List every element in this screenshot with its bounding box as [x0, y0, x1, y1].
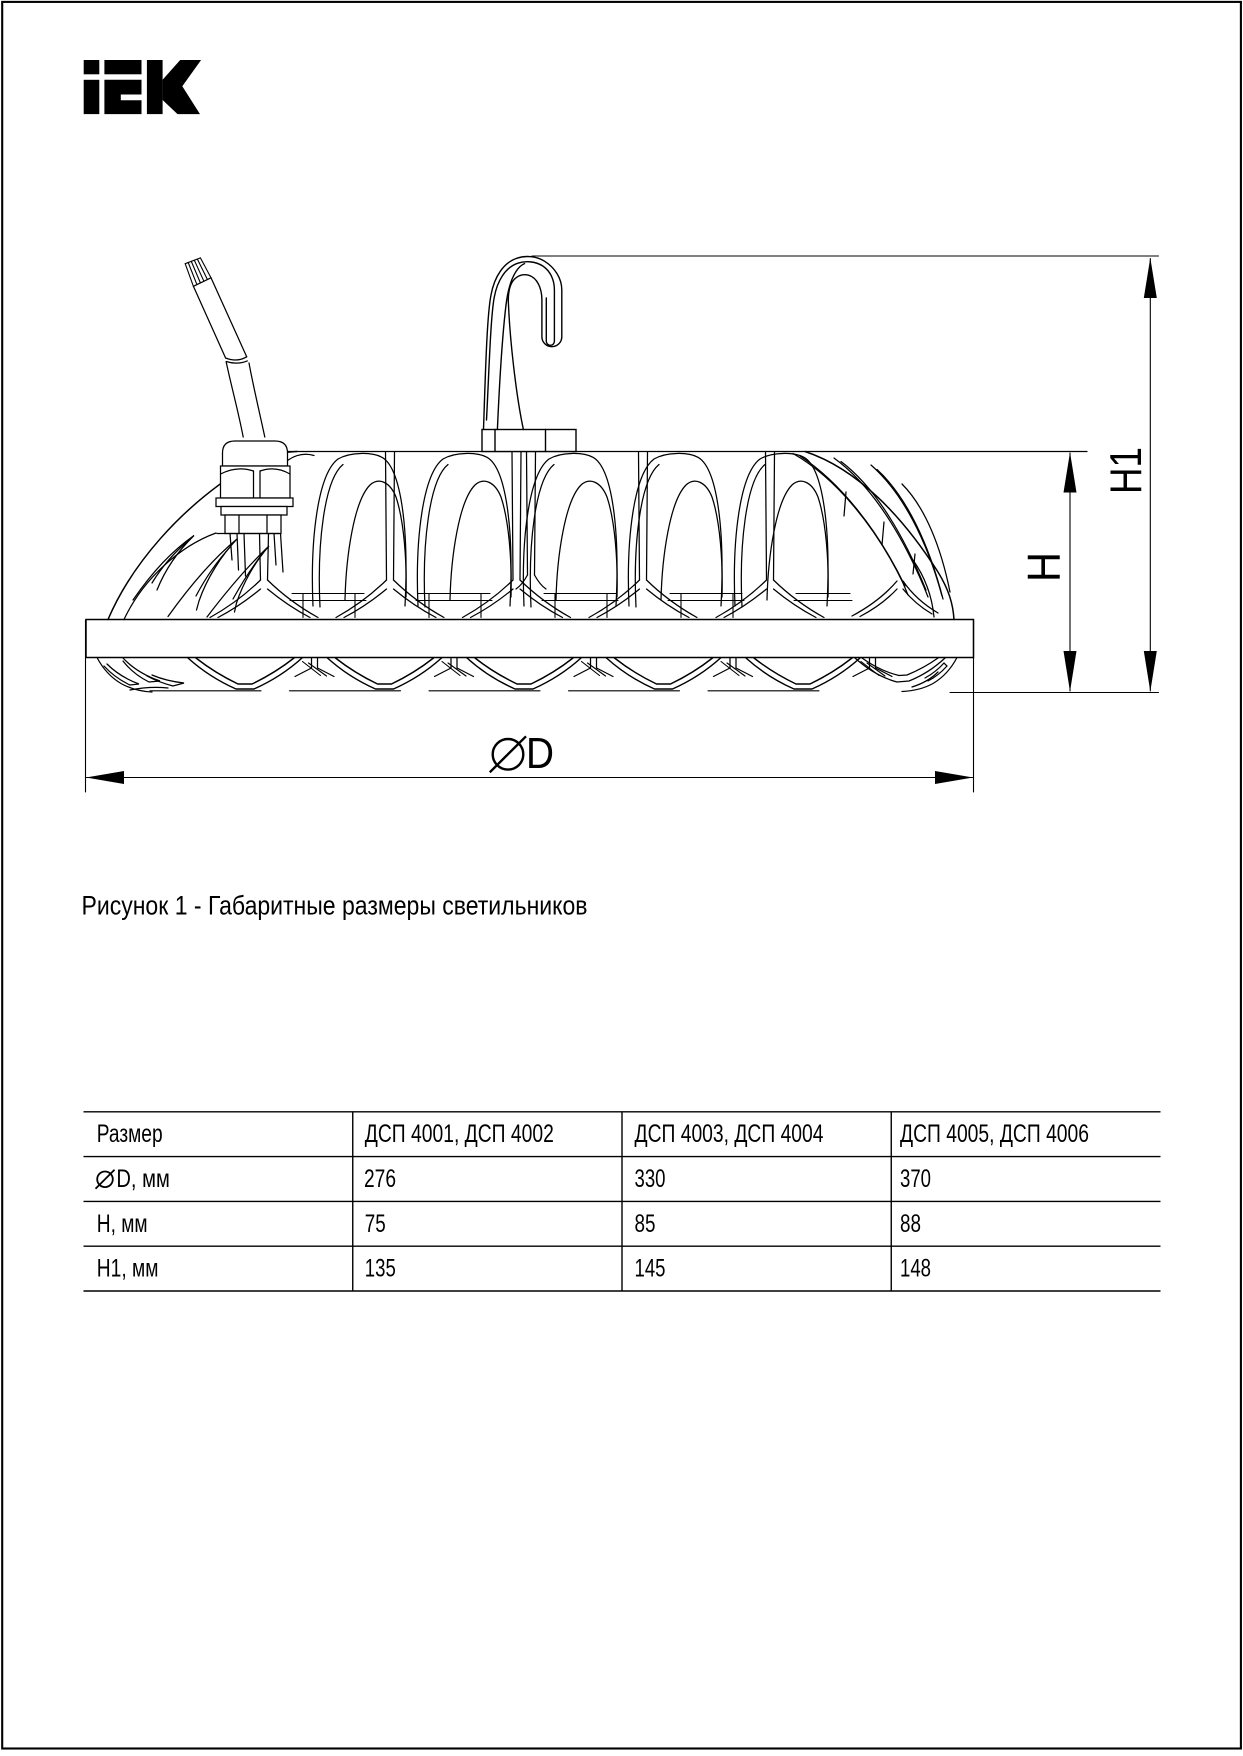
svg-text:276: 276 [364, 1165, 396, 1193]
svg-text:148: 148 [900, 1255, 931, 1283]
svg-text:Рисунок 1 - Габаритные размеры: Рисунок 1 - Габаритные размеры светильни… [82, 890, 588, 920]
svg-text:ДСП 4003, ДСП 4004: ДСП 4003, ДСП 4004 [635, 1120, 824, 1148]
svg-text:ДСП 4005, ДСП 4006: ДСП 4005, ДСП 4006 [900, 1120, 1089, 1148]
svg-text:D, мм: D, мм [116, 1165, 169, 1193]
svg-text:370: 370 [900, 1165, 931, 1193]
svg-text:ДСП 4001, ДСП 4002: ДСП 4001, ДСП 4002 [365, 1120, 554, 1148]
svg-text:135: 135 [365, 1255, 396, 1283]
svg-text:75: 75 [365, 1210, 386, 1238]
svg-text:330: 330 [635, 1165, 666, 1193]
svg-text:H1, мм: H1, мм [97, 1255, 159, 1283]
svg-text:D: D [526, 729, 554, 778]
svg-text:H, мм: H, мм [97, 1210, 148, 1238]
svg-text:145: 145 [635, 1255, 666, 1283]
svg-text:H1: H1 [1102, 447, 1151, 494]
svg-text:Размер: Размер [97, 1120, 163, 1148]
svg-text:85: 85 [635, 1210, 656, 1238]
svg-text:88: 88 [900, 1210, 921, 1238]
svg-text:H: H [1018, 552, 1070, 582]
